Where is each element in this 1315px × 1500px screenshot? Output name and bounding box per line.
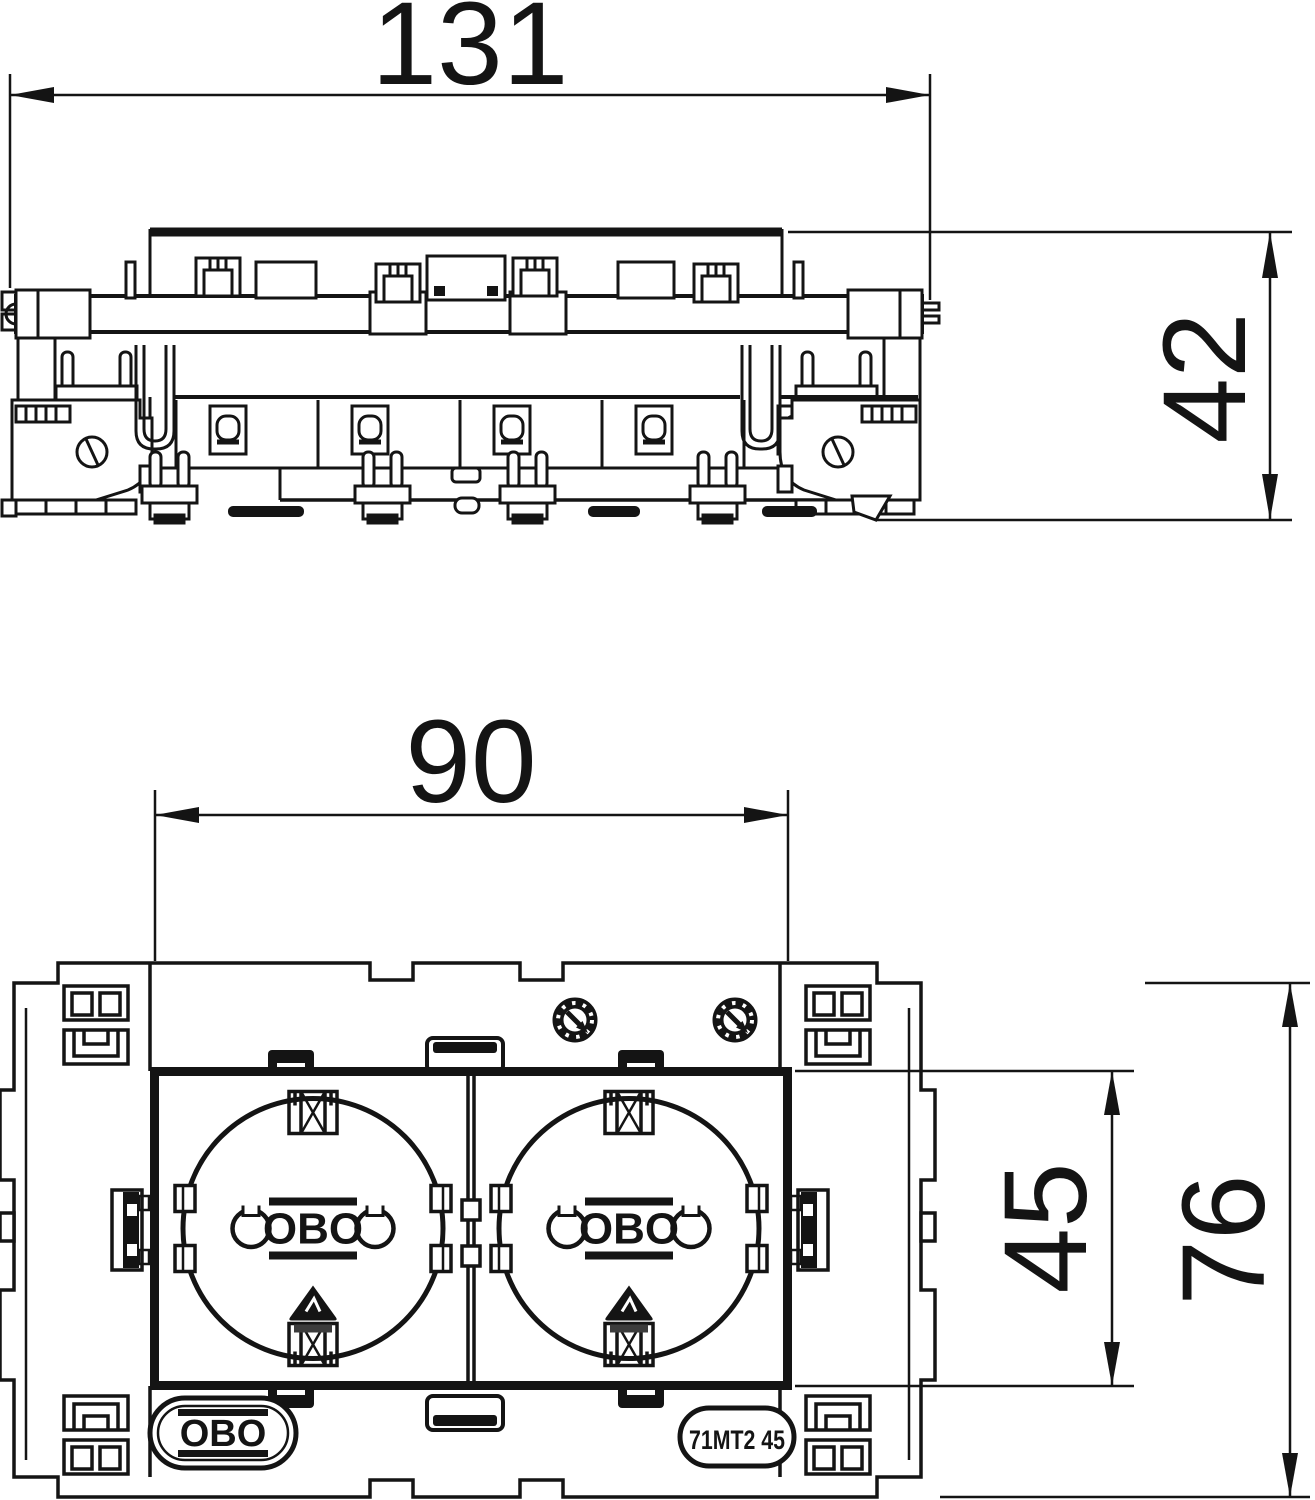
dim-label-plate-height: 76 bbox=[1158, 1174, 1290, 1305]
front-view-drawing: OBO 71MT2 45 bbox=[0, 963, 935, 1497]
rail-clip-base bbox=[510, 292, 566, 334]
dim-label-module-width: 90 bbox=[405, 696, 536, 828]
plate-brand-logo: OBO bbox=[150, 1398, 296, 1468]
guide-slot bbox=[742, 345, 780, 449]
arrowhead-left-icon bbox=[155, 807, 199, 823]
dim-label-side-width: 131 bbox=[372, 0, 569, 110]
adjuster-screw-icon bbox=[718, 1003, 752, 1037]
arrowhead-up-icon bbox=[1104, 1071, 1120, 1115]
technical-drawing-sheet: OBO bbox=[0, 0, 1315, 1500]
right-end-cap bbox=[778, 400, 920, 520]
arrowhead-down-icon bbox=[1104, 1342, 1120, 1386]
hatch-strip bbox=[16, 406, 70, 422]
arrowhead-down-icon bbox=[1262, 474, 1278, 520]
dim-label-module-height: 45 bbox=[980, 1162, 1112, 1293]
left-end-cap bbox=[2, 400, 154, 516]
dim-label-side-height: 42 bbox=[1139, 312, 1271, 443]
arrowhead-up-icon bbox=[1282, 983, 1298, 1027]
arrowhead-right-icon bbox=[886, 87, 930, 103]
side-screw-icon bbox=[823, 437, 853, 467]
plate-brand-text: OBO bbox=[180, 1413, 267, 1455]
arrowhead-left-icon bbox=[10, 87, 54, 103]
mounting-feet bbox=[142, 452, 817, 523]
product-code-text: 71MT2 45 bbox=[689, 1425, 785, 1455]
product-code-badge: 71MT2 45 bbox=[680, 1408, 794, 1466]
upper-clip-row bbox=[126, 256, 803, 302]
socket-module-frame bbox=[155, 1072, 788, 1386]
adjuster-screw-icon bbox=[558, 1003, 592, 1037]
arrowhead-up-icon bbox=[1262, 232, 1278, 278]
arrowhead-down-icon bbox=[1282, 1453, 1298, 1497]
side-view-drawing bbox=[2, 229, 939, 523]
hatch-strip bbox=[862, 406, 916, 422]
arrowhead-right-icon bbox=[744, 807, 788, 823]
side-screw-icon bbox=[77, 437, 107, 467]
dimension-module-width: 90 bbox=[155, 696, 788, 961]
